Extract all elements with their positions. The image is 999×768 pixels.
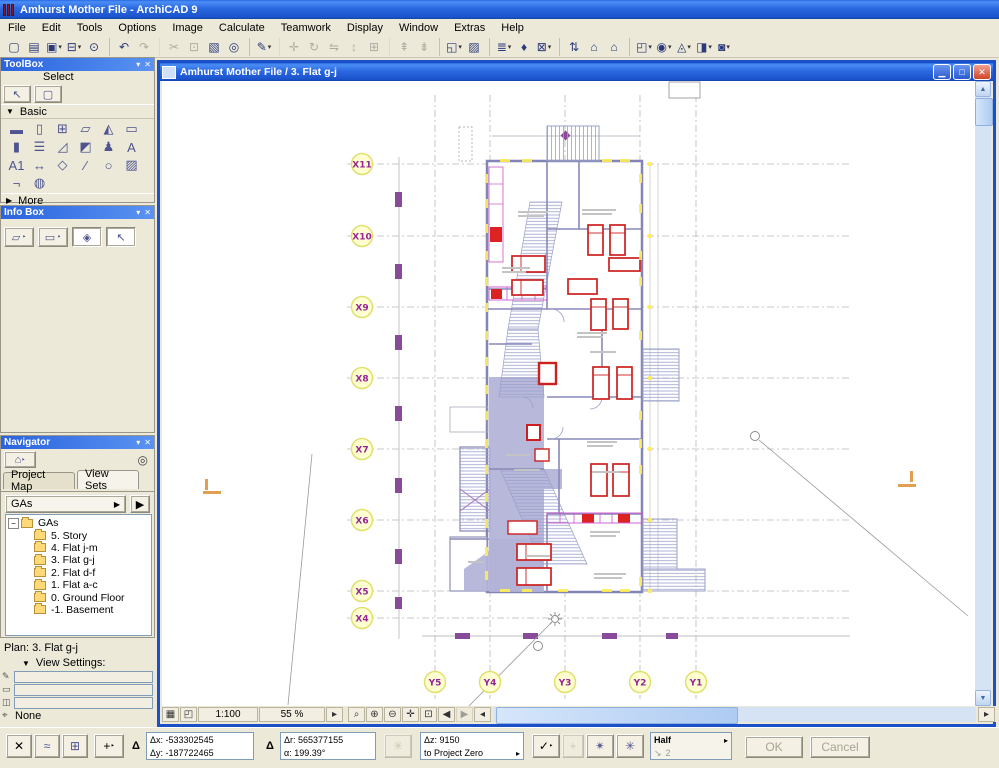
vertical-scrollbar[interactable]: ▲ ▼ bbox=[975, 81, 991, 706]
building-outline bbox=[450, 126, 705, 592]
detail-tool[interactable]: ◍ bbox=[28, 174, 51, 192]
find-change-button[interactable]: ⊙ bbox=[85, 38, 103, 56]
drag-button[interactable]: ✛ bbox=[279, 38, 303, 56]
arrow-mode-button[interactable]: ↖ bbox=[106, 227, 136, 247]
delta-ra-icon: Δ bbox=[262, 734, 278, 758]
hatch-toggle-button[interactable]: ▨ bbox=[465, 38, 483, 56]
svg-text:Y1: Y1 bbox=[689, 679, 703, 689]
view-sets-tree[interactable]: − GAs 5. Story4. Flat j-m3. Flat g-j2. F… bbox=[5, 514, 152, 636]
layers-button[interactable]: ≣▾ bbox=[489, 38, 513, 56]
story-folder-icon bbox=[34, 581, 46, 590]
arrow-tool[interactable]: ↖ bbox=[3, 85, 31, 103]
zoom-menu-arrow[interactable]: ▸ bbox=[326, 707, 343, 722]
view-set-dropdown[interactable]: GAs▶ bbox=[5, 495, 126, 513]
go-down-story-button[interactable]: ⌂ bbox=[605, 38, 623, 56]
paste-button[interactable]: ▧ bbox=[205, 38, 223, 56]
menu-calculate[interactable]: Calculate bbox=[211, 21, 273, 35]
ra-coordinate-field[interactable]: Δr: 565377155 α: 199.39° bbox=[280, 732, 376, 760]
stair-tool[interactable]: ☰ bbox=[28, 138, 51, 156]
pen-color-button[interactable]: ♦ bbox=[515, 38, 533, 56]
toolbox-panel: ToolBox ▾ ✕ Select ↖▢ ▼ Basic ▬▯⊞▱◭▭▮☰◿◩… bbox=[0, 57, 155, 203]
document-window: Amhurst Mother File / 3. Flat g-j ▁ □ ✕ bbox=[157, 60, 996, 727]
display-option-4-button[interactable]: ◨▾ bbox=[695, 38, 713, 56]
expand-triangle-icon: ▶ bbox=[6, 196, 12, 205]
tree-root[interactable]: − GAs bbox=[8, 517, 151, 529]
rotate-marquee-button[interactable]: ◈ bbox=[72, 227, 102, 247]
save-button[interactable]: ▣▾ bbox=[45, 38, 63, 56]
zoom-out-button[interactable]: ⊖ bbox=[384, 707, 401, 722]
document-titlebar[interactable]: Amhurst Mother File / 3. Flat g-j ▁ □ ✕ bbox=[160, 63, 993, 81]
display-option-1-button[interactable]: ◰▾ bbox=[629, 38, 653, 56]
menu-display[interactable]: Display bbox=[339, 21, 391, 35]
preview-button[interactable]: ◰ bbox=[180, 707, 197, 722]
folder-icon bbox=[21, 519, 33, 528]
elevate-button[interactable]: ↕ bbox=[345, 38, 363, 56]
view-settings-bar[interactable]: ▼ View Settings: bbox=[0, 656, 155, 670]
tab-project-map[interactable]: Project Map bbox=[3, 472, 75, 489]
find-select-button[interactable]: ◎ bbox=[225, 38, 243, 56]
document-title: Amhurst Mother File / 3. Flat g-j bbox=[180, 66, 337, 78]
maximize-button[interactable]: □ bbox=[953, 64, 971, 80]
document-icon bbox=[162, 66, 176, 79]
snap-angle-icon: ↘ bbox=[654, 748, 662, 758]
spline-mode-button[interactable]: ≈ bbox=[34, 734, 60, 758]
toolbox-close-icon[interactable]: ✕ bbox=[144, 60, 151, 69]
infobox-title: Info Box bbox=[4, 207, 44, 218]
marquee-rect-button[interactable]: ▭‣ bbox=[38, 227, 68, 247]
cut-button[interactable]: ✂ bbox=[159, 38, 183, 56]
relative-plus-button: + bbox=[562, 734, 584, 758]
menu-edit[interactable]: Edit bbox=[34, 21, 69, 35]
infobox-collapse-icon[interactable]: ▾ bbox=[136, 208, 140, 217]
camera-button[interactable]: ◙▾ bbox=[715, 38, 733, 56]
main-toolbar: ▢▤▣▾⊟▾⊙↶↷✂⊡▧◎✎▾✛↻⇋↕⊞⇞⇟◱▾▨≣▾♦⊠▾⇅⌂⌂◰▾◉▾◬▾◨… bbox=[0, 36, 999, 58]
line-tool[interactable]: ∕ bbox=[74, 156, 97, 174]
wall-tool[interactable]: ▬ bbox=[5, 120, 28, 138]
marquee-poly-button[interactable]: ▱‣ bbox=[4, 227, 34, 247]
open-button[interactable]: ▤ bbox=[25, 38, 43, 56]
navigator-header[interactable]: Navigator ▾ ✕ bbox=[1, 436, 154, 449]
sun-symbol bbox=[548, 612, 562, 626]
collapse-triangle-icon: ▼ bbox=[22, 659, 30, 668]
vscroll-thumb[interactable] bbox=[975, 98, 993, 126]
svg-text:X11: X11 bbox=[352, 161, 371, 171]
window-tool[interactable]: ⊞ bbox=[51, 120, 74, 138]
undo-button[interactable]: ↶ bbox=[109, 38, 133, 56]
tree-collapse-box[interactable]: − bbox=[8, 518, 19, 529]
xy-coordinate-field[interactable]: Δx: -533302545 Δy: -187722465 bbox=[146, 732, 254, 760]
toolbox-collapse-icon[interactable]: ▾ bbox=[136, 60, 140, 69]
fit-in-window-button[interactable]: ⊡ bbox=[420, 707, 437, 722]
horizontal-scrollbar[interactable] bbox=[494, 707, 976, 722]
go-up-story-button[interactable]: ⌂ bbox=[585, 38, 603, 56]
next-zoom-button: ▶ bbox=[456, 707, 473, 722]
inject-params-button[interactable]: ⇟ bbox=[415, 38, 433, 56]
cancel-button: Cancel bbox=[810, 736, 870, 758]
svg-text:X6: X6 bbox=[355, 517, 368, 527]
arc-tool[interactable]: ○ bbox=[97, 156, 120, 174]
delta-xy-icon: Δ bbox=[128, 734, 144, 758]
drawing-canvas[interactable]: X11 X10 X9 X8 X7 X6 X5 X4 Y5 Y4 Y3 Y2 Y1 bbox=[162, 81, 978, 706]
dimension-tool[interactable]: ↔ bbox=[28, 156, 51, 174]
scale-setting-field[interactable] bbox=[14, 684, 153, 696]
menubar: File Edit Tools Options Image Calculate … bbox=[0, 19, 999, 37]
infobox-buttons-row: ▱‣▭‣◈↖ bbox=[1, 219, 154, 255]
infobox-close-icon[interactable]: ✕ bbox=[144, 208, 151, 217]
svg-text:Y3: Y3 bbox=[558, 679, 572, 689]
ok-button: OK bbox=[745, 736, 803, 758]
collapse-bar-button[interactable]: ◂ bbox=[474, 707, 491, 722]
apply-button[interactable]: ✓‣ bbox=[532, 734, 560, 758]
label-tool[interactable]: A1 bbox=[5, 156, 28, 174]
navigator-panel: Navigator ▾ ✕ ⌂‣ ◎ Project Map View Sets… bbox=[0, 435, 155, 638]
gravity-button: ✳ bbox=[384, 734, 412, 758]
publisher-icon[interactable]: ◎ bbox=[138, 453, 148, 467]
document-footer: ▦ ◰ 1:100 55 % ▸ ⌕ ⊕ ⊖ ✛ ⊡ ◀ ▶ ◂ ▸ bbox=[162, 706, 996, 722]
story-folder-icon bbox=[34, 543, 46, 552]
pan-button[interactable]: ✛ bbox=[402, 707, 419, 722]
pickup-params-button[interactable]: ⇞ bbox=[389, 38, 413, 56]
navigator-close-icon[interactable]: ✕ bbox=[144, 438, 151, 447]
pen-settings-button[interactable]: ✎▾ bbox=[249, 38, 273, 56]
display-setting-field[interactable] bbox=[14, 697, 153, 709]
magnet-snap-button[interactable]: ✳ bbox=[616, 734, 644, 758]
story-folder-icon bbox=[34, 568, 46, 577]
display-option-3-button[interactable]: ◬▾ bbox=[675, 38, 693, 56]
element-settings-button[interactable]: ⊠▾ bbox=[535, 38, 553, 56]
menu-tools[interactable]: Tools bbox=[69, 21, 111, 35]
rotate-button[interactable]: ↻ bbox=[305, 38, 323, 56]
layer-setting-icon: ✎ bbox=[2, 671, 14, 682]
mesh-tool[interactable]: ◿ bbox=[51, 138, 74, 156]
toolbox-basic-label: Basic bbox=[20, 106, 47, 118]
cursor-snap-button[interactable]: ✴ bbox=[586, 734, 614, 758]
grid-snap-button[interactable]: ⊞ bbox=[62, 734, 88, 758]
svg-text:X10: X10 bbox=[352, 233, 371, 243]
snap-dropdown-icon[interactable]: ▸ bbox=[724, 734, 728, 747]
beam-tool[interactable]: ▭ bbox=[120, 120, 143, 138]
toolbox-header[interactable]: ToolBox ▾ ✕ bbox=[1, 58, 154, 71]
zoom-options-button[interactable]: ⌕ bbox=[348, 707, 365, 722]
svg-text:X7: X7 bbox=[355, 446, 368, 456]
text-tool[interactable]: A bbox=[120, 138, 143, 156]
story-folder-icon bbox=[34, 605, 46, 614]
origin-marker-right bbox=[898, 471, 916, 487]
toolbox-basic-grid: ▬▯⊞▱◭▭▮☰◿◩♟AA1↔◇∕○▨¬◍ bbox=[1, 119, 154, 193]
zoom-in-button[interactable]: ⊕ bbox=[366, 707, 383, 722]
view-settings-section: Plan: 3. Flat g-j ▼ View Settings: ✎ ▭ ◫… bbox=[0, 640, 155, 727]
story-folder-icon bbox=[34, 531, 46, 540]
floor-plan: X11 X10 X9 X8 X7 X6 X5 X4 Y5 Y4 Y3 Y2 Y1 bbox=[162, 81, 978, 706]
mirror-button[interactable]: ⇋ bbox=[325, 38, 343, 56]
tab-view-sets[interactable]: View Sets bbox=[77, 470, 139, 489]
redo-button[interactable]: ↷ bbox=[135, 38, 153, 56]
zoom-value[interactable]: 55 % bbox=[259, 707, 325, 722]
section-tool[interactable]: ¬ bbox=[5, 174, 28, 192]
toolbox-select-row: ↖▢ bbox=[1, 84, 154, 104]
display-setting-icon: ◫ bbox=[2, 697, 14, 708]
menu-file[interactable]: File bbox=[0, 21, 34, 35]
reference-dropdown-icon[interactable]: ▸ bbox=[516, 747, 520, 760]
app-title: Amhurst Mother File - ArchiCAD 9 bbox=[20, 4, 197, 16]
hscroll-thumb[interactable] bbox=[496, 707, 738, 724]
archicad-app-icon bbox=[3, 3, 16, 16]
close-button[interactable]: ✕ bbox=[973, 64, 991, 80]
toolbox-basic-bar[interactable]: ▼ Basic bbox=[1, 104, 154, 119]
slab-tool[interactable]: ▱ bbox=[74, 120, 97, 138]
display-option-2-button[interactable]: ◉▾ bbox=[655, 38, 673, 56]
app-titlebar[interactable]: Amhurst Mother File - ArchiCAD 9 bbox=[0, 0, 999, 19]
copy-button[interactable]: ⊡ bbox=[185, 38, 203, 56]
archicad-app: { "app": { "title": "Amhurst Mother File… bbox=[0, 0, 999, 767]
fill-tool[interactable]: ▨ bbox=[120, 156, 143, 174]
object-tool[interactable]: ♟ bbox=[97, 138, 120, 156]
svg-text:Y5: Y5 bbox=[428, 679, 442, 689]
zone-tool[interactable]: ◩ bbox=[74, 138, 97, 156]
scale-setting-icon: ▭ bbox=[2, 684, 14, 695]
scale-toggle-button[interactable]: ▦ bbox=[162, 707, 179, 722]
project-chooser-button[interactable]: ⌂‣ bbox=[4, 451, 36, 468]
navigator-title: Navigator bbox=[4, 437, 50, 448]
menu-image[interactable]: Image bbox=[164, 21, 211, 35]
toolbox-title: ToolBox bbox=[4, 59, 43, 70]
roof-tool[interactable]: ◭ bbox=[97, 120, 120, 138]
snap-division-field[interactable]: Half▸ ↘2 bbox=[650, 732, 732, 760]
scroll-down-icon[interactable]: ▼ bbox=[975, 690, 991, 706]
svg-text:Y4: Y4 bbox=[483, 679, 497, 689]
infobox-header[interactable]: Info Box ▾ ✕ bbox=[1, 206, 154, 219]
story-folder-icon bbox=[34, 556, 46, 565]
hscroll-right-icon[interactable]: ▸ bbox=[978, 707, 995, 722]
scroll-up-icon[interactable]: ▲ bbox=[975, 81, 991, 97]
z-coordinate-field[interactable]: Δz: 9150 to Project Zero▸ bbox=[420, 732, 524, 760]
zoom-setting-icon: ⌖ bbox=[2, 710, 12, 721]
navigate-button[interactable]: ⇅ bbox=[559, 38, 583, 56]
level-dimension-tool[interactable]: ◇ bbox=[51, 156, 74, 174]
multiply-button[interactable]: ⊞ bbox=[365, 38, 383, 56]
column-tool[interactable]: ▮ bbox=[5, 138, 28, 156]
svg-text:X5: X5 bbox=[355, 588, 368, 598]
view-set-menu-button[interactable]: ▶ bbox=[130, 495, 150, 513]
toolbox-select-label: Select bbox=[1, 71, 154, 84]
story-folder-icon bbox=[34, 593, 46, 602]
marquee-tool[interactable]: ▢ bbox=[34, 85, 62, 103]
svg-text:Y2: Y2 bbox=[633, 679, 647, 689]
dropdown-arrow-icon: ▶ bbox=[114, 500, 120, 509]
navigator-collapse-icon[interactable]: ▾ bbox=[136, 438, 140, 447]
menu-extras[interactable]: Extras bbox=[446, 21, 493, 35]
svg-text:X8: X8 bbox=[355, 375, 368, 385]
menu-teamwork[interactable]: Teamwork bbox=[273, 21, 339, 35]
previous-zoom-button[interactable]: ◀ bbox=[438, 707, 455, 722]
origin-marker-left bbox=[203, 479, 221, 494]
menu-options[interactable]: Options bbox=[110, 21, 164, 35]
layer-setting-field[interactable] bbox=[14, 671, 153, 683]
cancel-drawing-button[interactable]: ✕ bbox=[6, 734, 32, 758]
door-tool[interactable]: ▯ bbox=[28, 120, 51, 138]
minimize-button[interactable]: ▁ bbox=[933, 64, 951, 80]
infobox-panel: Info Box ▾ ✕ ▱‣▭‣◈↖ bbox=[0, 205, 155, 433]
window-options-button[interactable]: ◱▾ bbox=[439, 38, 463, 56]
tree-children: 5. Story4. Flat j-m3. Flat g-j2. Flat d-… bbox=[8, 529, 151, 616]
zoom-setting-value[interactable]: None bbox=[15, 710, 41, 722]
scale-value[interactable]: 1:100 bbox=[198, 707, 258, 722]
new-button[interactable]: ▢ bbox=[5, 38, 23, 56]
menu-help[interactable]: Help bbox=[493, 21, 532, 35]
svg-text:X9: X9 bbox=[355, 304, 368, 314]
menu-window[interactable]: Window bbox=[391, 21, 446, 35]
collapse-triangle-icon: ▼ bbox=[6, 107, 14, 116]
svg-text:X4: X4 bbox=[355, 615, 368, 625]
add-coordinate-button[interactable]: +‣ bbox=[94, 734, 124, 758]
plan-status: Plan: 3. Flat g-j bbox=[0, 640, 155, 656]
coordinate-box: ✕ ≈ ⊞ +‣ Δ Δx: -533302545 Δy: -187722465… bbox=[0, 727, 999, 768]
print-button[interactable]: ⊟▾ bbox=[65, 38, 83, 56]
